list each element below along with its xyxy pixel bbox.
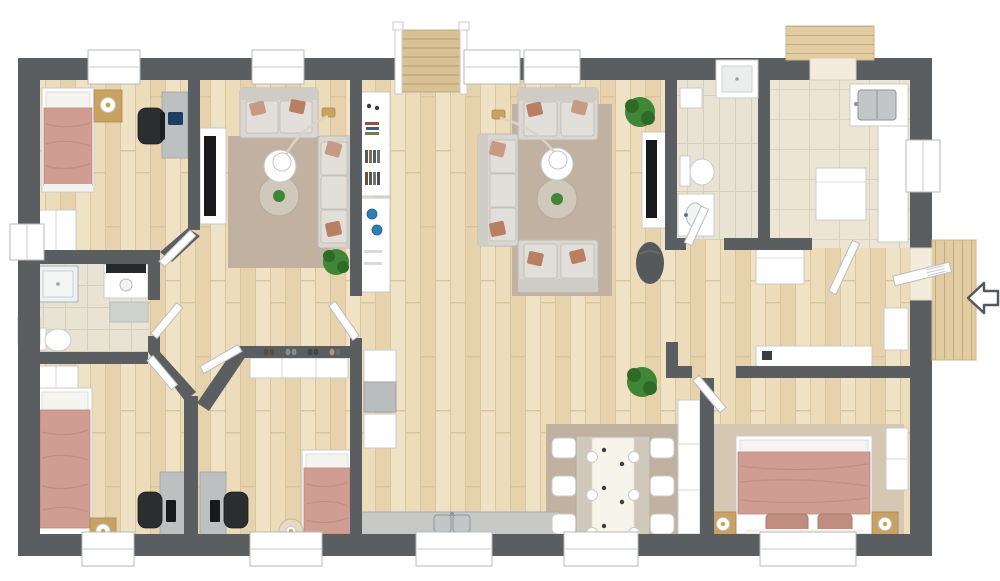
wall-cabinet bbox=[680, 88, 702, 108]
wall-left bbox=[18, 58, 40, 556]
potted-plant bbox=[625, 97, 655, 127]
console-decor bbox=[762, 351, 772, 360]
half-wall-bedroom2 bbox=[236, 346, 362, 358]
fridge-lower bbox=[364, 382, 396, 412]
vanity-counter bbox=[106, 264, 146, 273]
monitor bbox=[166, 500, 176, 522]
dresser bbox=[250, 358, 348, 378]
side-counter bbox=[878, 126, 908, 242]
office-chair bbox=[224, 492, 248, 528]
wall-kitchen-lower bbox=[350, 338, 362, 536]
bed-sheet bbox=[46, 92, 90, 110]
window bbox=[524, 50, 580, 84]
floor-plan-svg bbox=[0, 0, 1000, 581]
toilet-tank bbox=[680, 156, 690, 186]
sink-basin bbox=[434, 515, 451, 532]
bed-blanket bbox=[44, 108, 92, 186]
office-chair bbox=[138, 492, 162, 528]
table-plant bbox=[551, 193, 563, 205]
faucet bbox=[450, 512, 454, 516]
tall-closet bbox=[678, 400, 700, 534]
laptop bbox=[168, 112, 183, 125]
toilet bbox=[690, 159, 714, 185]
potted-plant bbox=[323, 249, 349, 275]
wall-bathroom2-south-a bbox=[665, 238, 686, 250]
floor-plan-canvas bbox=[0, 0, 1000, 581]
tv bbox=[204, 136, 216, 216]
bed-pillow bbox=[42, 392, 88, 412]
toilet bbox=[45, 329, 71, 351]
window bbox=[906, 140, 940, 192]
wall-master-top-a bbox=[666, 366, 692, 378]
tall-cabinet bbox=[364, 414, 396, 448]
potted-plant bbox=[627, 367, 657, 397]
window bbox=[88, 50, 140, 84]
decor-plate bbox=[372, 225, 382, 235]
wall-right-lower bbox=[910, 300, 932, 556]
wall-bedroom1-living1 bbox=[188, 78, 200, 230]
console-table bbox=[756, 346, 872, 368]
wall-bathroom2-south-b bbox=[724, 238, 812, 250]
stair-rail-left bbox=[395, 26, 402, 94]
bed-blanket bbox=[738, 452, 870, 514]
window bbox=[464, 50, 520, 84]
island bbox=[816, 168, 866, 220]
window bbox=[82, 532, 134, 566]
table-runner bbox=[592, 438, 634, 546]
peninsula bbox=[756, 246, 804, 284]
fridge bbox=[364, 350, 396, 382]
bed-foot bbox=[44, 184, 92, 191]
sink-basin bbox=[453, 515, 470, 532]
window bbox=[564, 532, 638, 566]
staircase bbox=[393, 22, 469, 94]
tap bbox=[684, 213, 688, 217]
table-plant bbox=[273, 190, 285, 202]
wall-bathroom-left-right-lower bbox=[148, 336, 160, 352]
wall-bedroom3-bedroom2 bbox=[184, 396, 198, 536]
window bbox=[250, 532, 322, 566]
window bbox=[10, 224, 44, 260]
hall-shelving bbox=[358, 92, 390, 292]
wall-master-top-b bbox=[736, 366, 932, 378]
deck-door-threshold bbox=[810, 58, 856, 80]
wall-bedroom3-top bbox=[38, 352, 148, 364]
tv bbox=[646, 140, 657, 218]
shower-enclosure-top bbox=[716, 60, 758, 98]
top-deck bbox=[786, 26, 874, 60]
window bbox=[252, 50, 304, 84]
faucet bbox=[854, 102, 858, 106]
dark-pouf-chair bbox=[636, 242, 664, 284]
entry-bench bbox=[884, 308, 908, 350]
wall-living2-bathroom2 bbox=[665, 78, 677, 250]
decor-plate bbox=[367, 209, 377, 219]
entry-hall bbox=[884, 308, 908, 350]
window bbox=[416, 532, 492, 566]
stair-newel bbox=[393, 22, 403, 30]
wall-bathroom2-kitchen2 bbox=[758, 78, 770, 250]
wall-bathroom-left-top bbox=[38, 250, 160, 264]
wall-hall-upper bbox=[350, 78, 362, 296]
stair-newel bbox=[459, 22, 469, 30]
bath-mat bbox=[110, 302, 148, 322]
window bbox=[760, 532, 856, 566]
arc-lamp-base bbox=[322, 108, 335, 117]
wall-bathroom-left-right-upper bbox=[148, 264, 160, 300]
monitor bbox=[210, 500, 220, 522]
wall-top-left bbox=[18, 58, 400, 80]
